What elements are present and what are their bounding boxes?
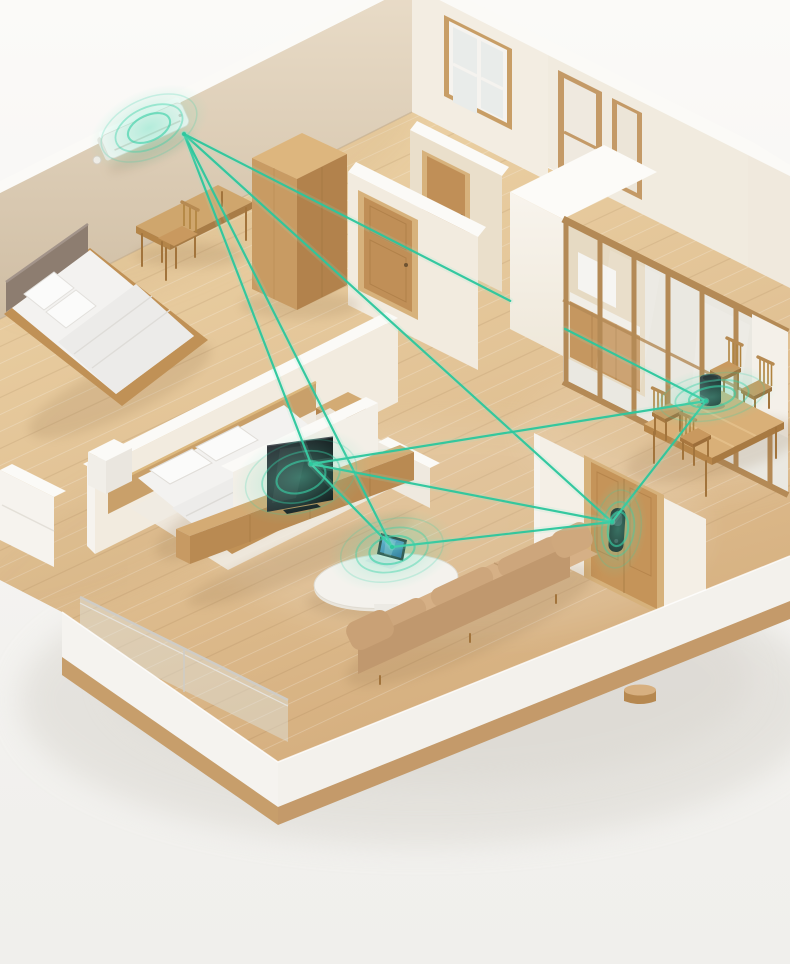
apartment-isometric-scene: smart-home-mesh-network-illustration <box>0 0 790 964</box>
wall-right-edge <box>748 144 790 288</box>
door-lock-anchor <box>610 520 614 524</box>
wood-stump <box>624 685 656 705</box>
tv-anchor <box>309 462 313 466</box>
ac-anchor <box>182 132 186 136</box>
smart-home-illustration: smart-home-mesh-network-illustration <box>0 0 790 964</box>
speaker-anchor <box>704 399 708 403</box>
laptop-anchor <box>390 545 394 549</box>
